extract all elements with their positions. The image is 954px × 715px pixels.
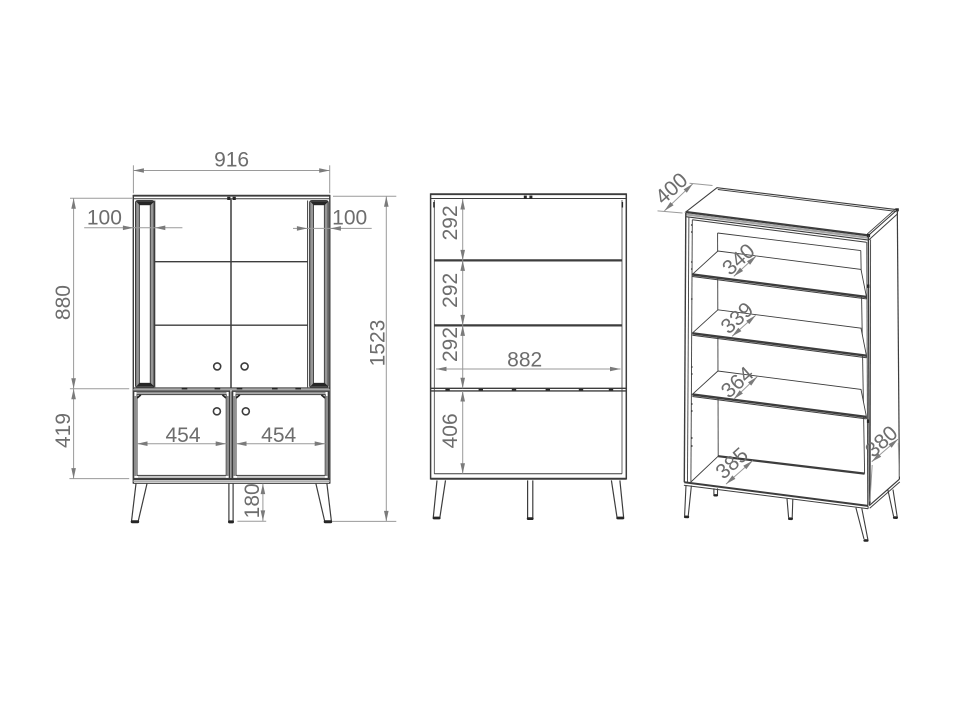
svg-text:292: 292 bbox=[439, 205, 462, 240]
svg-text:880: 880 bbox=[52, 285, 75, 320]
svg-text:100: 100 bbox=[332, 206, 367, 229]
svg-text:385: 385 bbox=[711, 443, 752, 484]
svg-text:882: 882 bbox=[507, 348, 542, 371]
svg-text:292: 292 bbox=[439, 273, 462, 308]
svg-text:454: 454 bbox=[261, 424, 296, 447]
svg-text:406: 406 bbox=[439, 413, 462, 448]
svg-text:454: 454 bbox=[165, 424, 200, 447]
svg-text:180: 180 bbox=[241, 483, 264, 518]
svg-text:292: 292 bbox=[439, 327, 462, 362]
svg-text:916: 916 bbox=[214, 149, 249, 172]
svg-text:100: 100 bbox=[87, 206, 122, 229]
svg-text:400: 400 bbox=[651, 169, 692, 210]
svg-text:419: 419 bbox=[52, 413, 75, 448]
svg-text:1523: 1523 bbox=[366, 320, 389, 367]
